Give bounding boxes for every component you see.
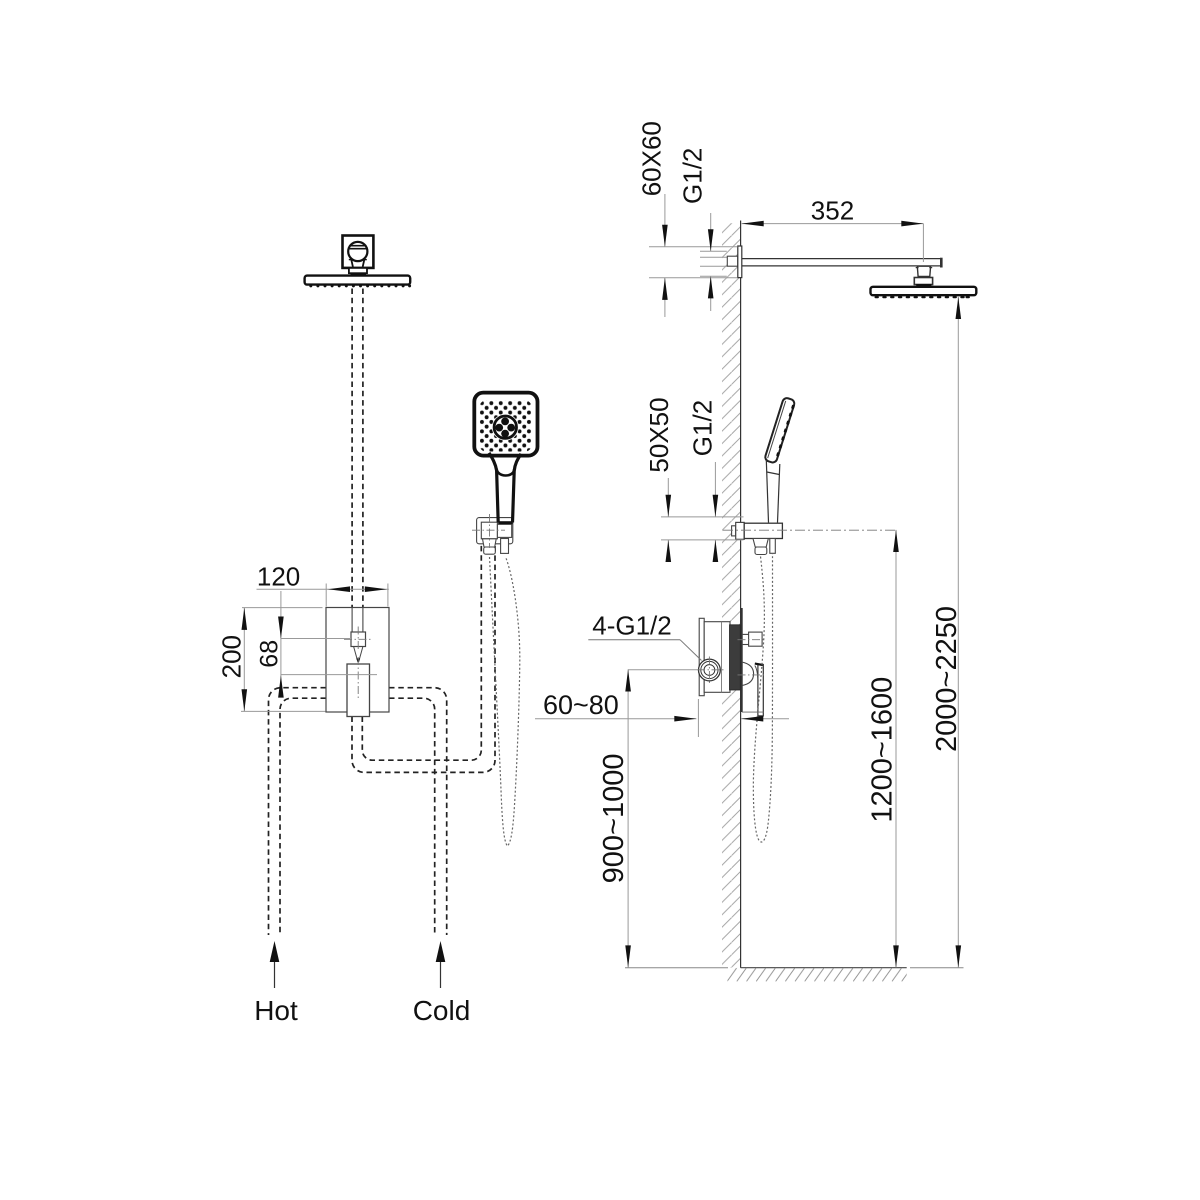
svg-text:Hot: Hot [254, 995, 298, 1026]
svg-text:4-G1/2: 4-G1/2 [592, 611, 672, 641]
svg-text:200: 200 [217, 635, 247, 678]
svg-text:60X60: 60X60 [637, 121, 667, 196]
svg-text:G1/2: G1/2 [688, 400, 718, 456]
svg-text:2000~2250: 2000~2250 [931, 606, 963, 752]
svg-text:120: 120 [257, 562, 300, 592]
svg-text:352: 352 [811, 196, 854, 226]
svg-text:1200~1600: 1200~1600 [867, 677, 899, 823]
svg-text:900~1000: 900~1000 [598, 753, 630, 883]
svg-text:68: 68 [255, 640, 283, 668]
svg-text:G1/2: G1/2 [678, 148, 708, 204]
svg-text:60~80: 60~80 [543, 690, 619, 720]
svg-text:50X50: 50X50 [644, 397, 674, 472]
svg-text:Cold: Cold [413, 995, 471, 1026]
